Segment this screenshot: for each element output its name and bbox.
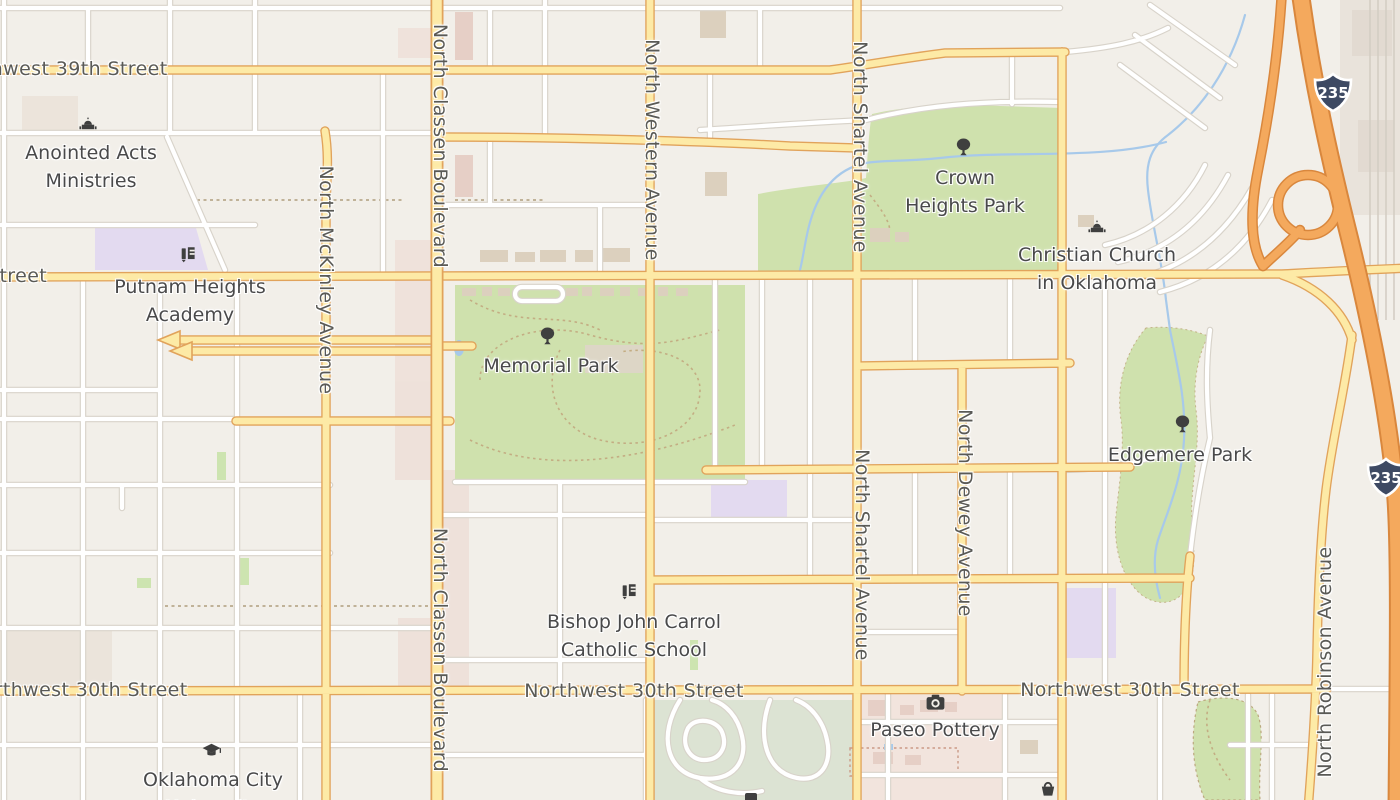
interstate-shield: 235 [1313, 71, 1353, 113]
camera-icon [926, 693, 944, 711]
map-canvas[interactable]: Northwest 39th Street Street North McKin… [0, 0, 1400, 800]
basket-icon [1039, 779, 1057, 797]
street-label-classen-top: North Classen Boulevard [429, 24, 451, 268]
school-icon [621, 582, 639, 600]
school-icon [180, 245, 198, 263]
street-label-robinson: North Robinson Avenue [1314, 546, 1336, 777]
street-label-shartel-mid: North Shartel Avenue [851, 449, 873, 661]
interstate-shield: 235 [1366, 456, 1400, 498]
poi-label-christian-church: Christian Churchin Oklahoma [1018, 241, 1176, 297]
tree-icon [1173, 415, 1191, 433]
poi-label-bishop-school: Bishop John CarrolCatholic School [547, 608, 721, 664]
church-icon [79, 114, 97, 132]
poi-label-putnam: Putnam HeightsAcademy [114, 273, 266, 329]
street-label-shartel-top: North Shartel Avenue [849, 41, 871, 253]
tree-icon [954, 138, 972, 156]
street-label-mckinley: North McKinley Avenue [315, 165, 337, 394]
street-label-nw36-fragment: Street [0, 265, 47, 287]
street-label-nw30-mid: Northwest 30th Street [524, 680, 744, 702]
poi-label-memorial-park: Memorial Park [483, 352, 618, 380]
marker-icon [744, 792, 762, 800]
shield-number: 235 [1366, 469, 1400, 487]
street-label-nw30-left: Northwest 30th Street [0, 679, 188, 701]
poi-label-paseo-pottery: Paseo Pottery [870, 716, 1000, 744]
street-label-nw30-right: Northwest 30th Street [1020, 679, 1240, 701]
poi-label-okc-university: Oklahoma CityUniversity [143, 766, 283, 800]
poi-label-crown-heights: CrownHeights Park [905, 164, 1025, 220]
poi-label-edgemere-park: Edgemere Park [1108, 441, 1252, 469]
church-icon [1088, 217, 1106, 235]
street-label-western: North Western Avenue [641, 39, 663, 261]
street-label-nw39: Northwest 39th Street [0, 58, 168, 80]
golf-area [646, 700, 855, 800]
street-label-dewey: North Dewey Avenue [954, 409, 976, 617]
shield-number: 235 [1313, 84, 1353, 102]
street-label-classen-bottom: North Classen Boulevard [429, 528, 451, 772]
poi-label-anointed: Anointed ActsMinistries [25, 139, 157, 195]
graduation-cap-icon [202, 742, 220, 760]
tree-icon [538, 327, 556, 345]
